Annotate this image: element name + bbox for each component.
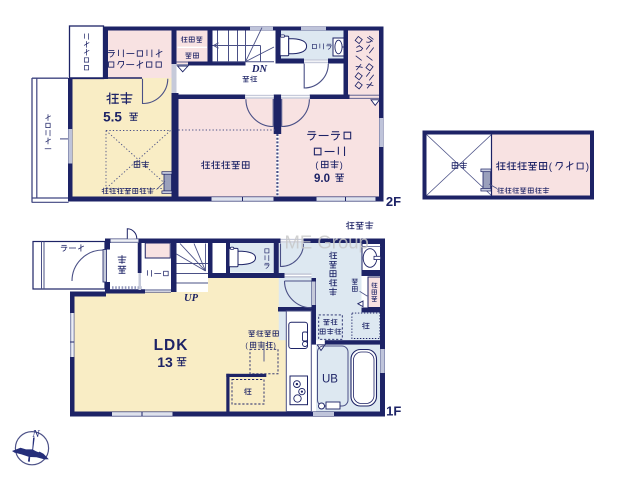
svg-text:(: ( bbox=[315, 160, 318, 170]
svg-text:): ) bbox=[273, 341, 275, 350]
svg-text:5.5: 5.5 bbox=[103, 110, 122, 125]
svg-text:UP: UP bbox=[184, 293, 199, 304]
svg-text:LDK: LDK bbox=[154, 337, 189, 354]
svg-text:13: 13 bbox=[157, 354, 173, 370]
svg-text:DN: DN bbox=[251, 64, 268, 75]
svg-text:): ) bbox=[340, 160, 343, 170]
svg-text:): ) bbox=[586, 162, 589, 173]
svg-text:ME Group: ME Group bbox=[285, 232, 369, 253]
svg-text:9.0: 9.0 bbox=[314, 173, 330, 185]
svg-text:2F: 2F bbox=[386, 194, 401, 209]
svg-text:UB: UB bbox=[322, 374, 338, 386]
svg-text:N: N bbox=[31, 428, 40, 440]
svg-text:1F: 1F bbox=[386, 404, 401, 419]
